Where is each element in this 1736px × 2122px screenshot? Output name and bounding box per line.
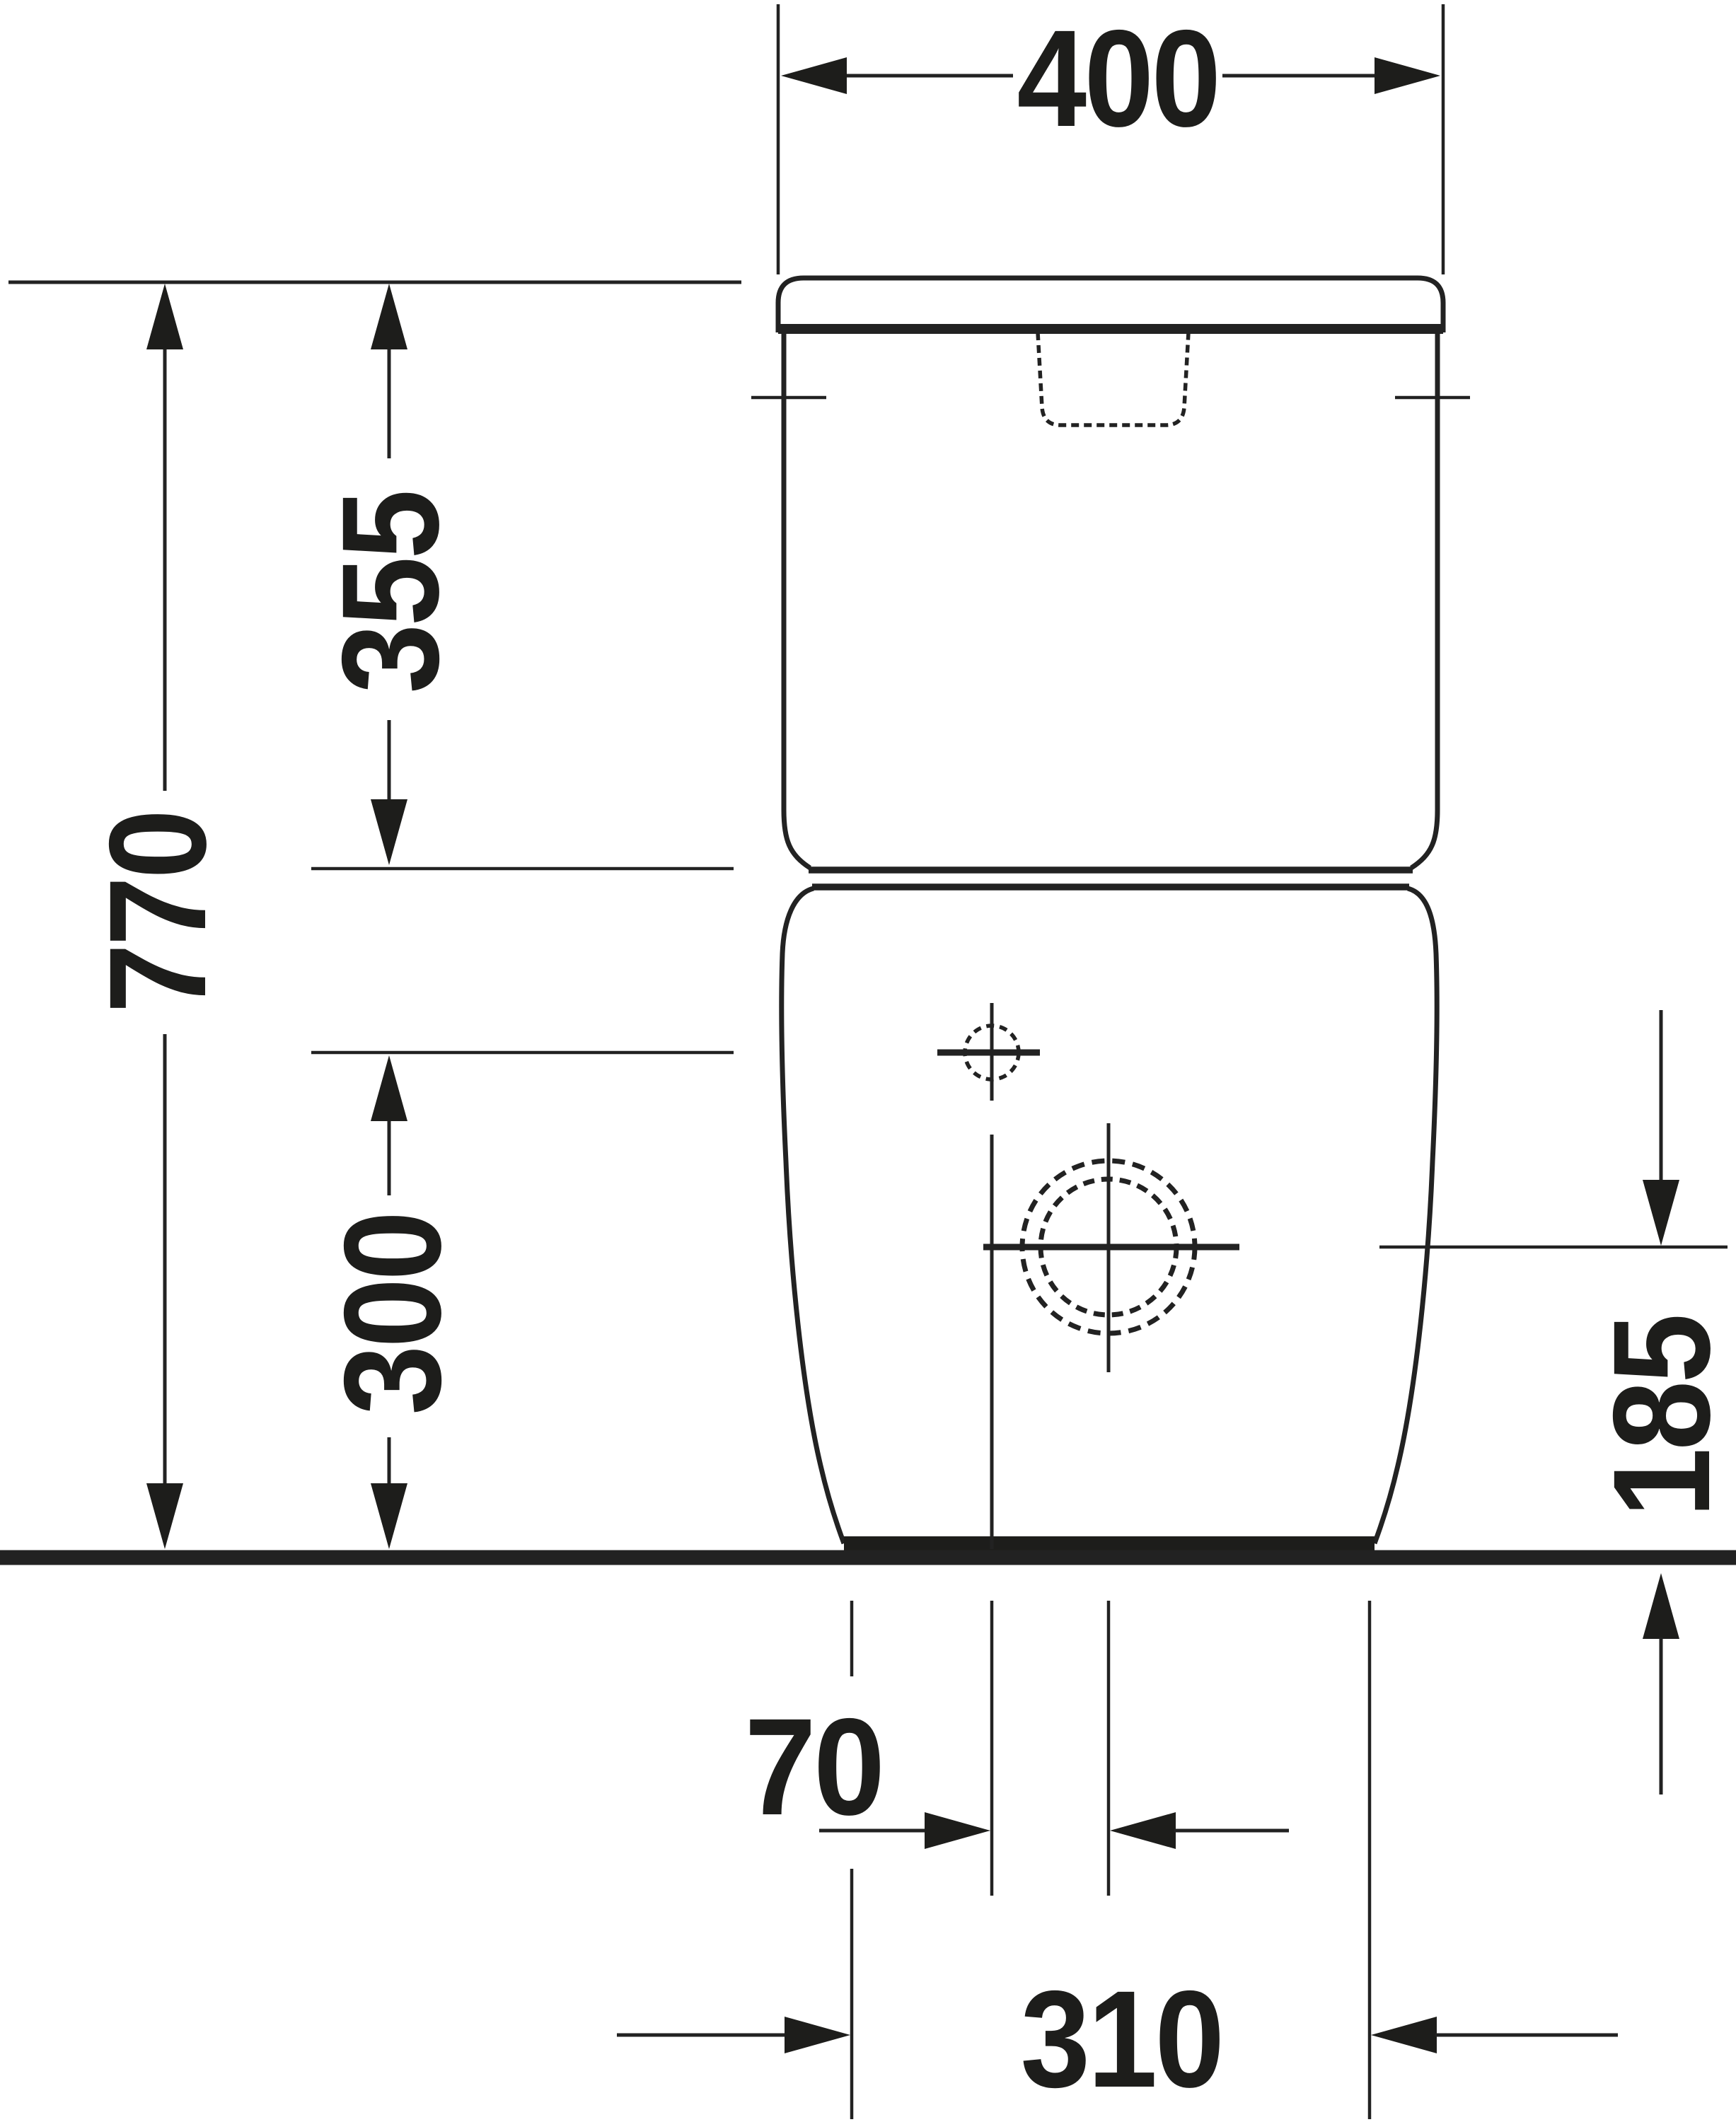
bowl-left-side [782,888,844,1543]
cistern-left-side [784,334,810,868]
dimension-label-770: 770 [81,812,235,1014]
dimension-label-355: 355 [313,492,468,694]
arrowhead-right-icon [785,2017,850,2053]
dimension-label-400: 400 [1017,1,1219,156]
dimension-supply-height: 300 [311,1053,734,1549]
arrowhead-down-icon [146,1483,183,1549]
dimension-supply-offset: 70 [745,1690,1290,1849]
arrowhead-up-icon [1643,1573,1679,1639]
wc-fixture-outline [0,278,1736,1559]
arrowhead-up-icon [146,284,183,349]
arrowhead-left-icon [781,57,847,94]
arrowhead-right-icon [925,1812,990,1849]
water-supply-mark [937,1003,1040,1101]
dimension-cistern-height: 355 [311,284,734,869]
bowl-right-side [1375,888,1437,1543]
outlet-connection-mark [983,1123,1239,1372]
arrowhead-left-icon [1371,2017,1437,2053]
arrowhead-right-icon [1375,57,1440,94]
cistern-right-side [1411,334,1437,868]
dimension-label-300: 300 [316,1214,470,1415]
flush-button-recess-hidden-line [1038,332,1188,425]
arrowhead-down-icon [1643,1180,1679,1246]
dimension-label-70: 70 [745,1690,883,1844]
arrowhead-up-icon [371,1055,407,1121]
arrowhead-down-icon [371,1483,407,1549]
dimension-label-310: 310 [1021,1962,1222,2116]
arrowhead-down-icon [371,799,407,865]
wc-dimension-drawing-canvas: 400 770 355 300 185 [0,0,1736,2122]
dimension-label-185: 185 [1585,1316,1736,1518]
dimension-cistern-width: 400 [751,1,1470,398]
technical-drawing-page: 400 770 355 300 185 [0,0,1736,2122]
arrowhead-left-icon [1110,1812,1176,1849]
arrowhead-up-icon [371,284,407,349]
dimension-base-width: 310 [617,1962,1618,2116]
